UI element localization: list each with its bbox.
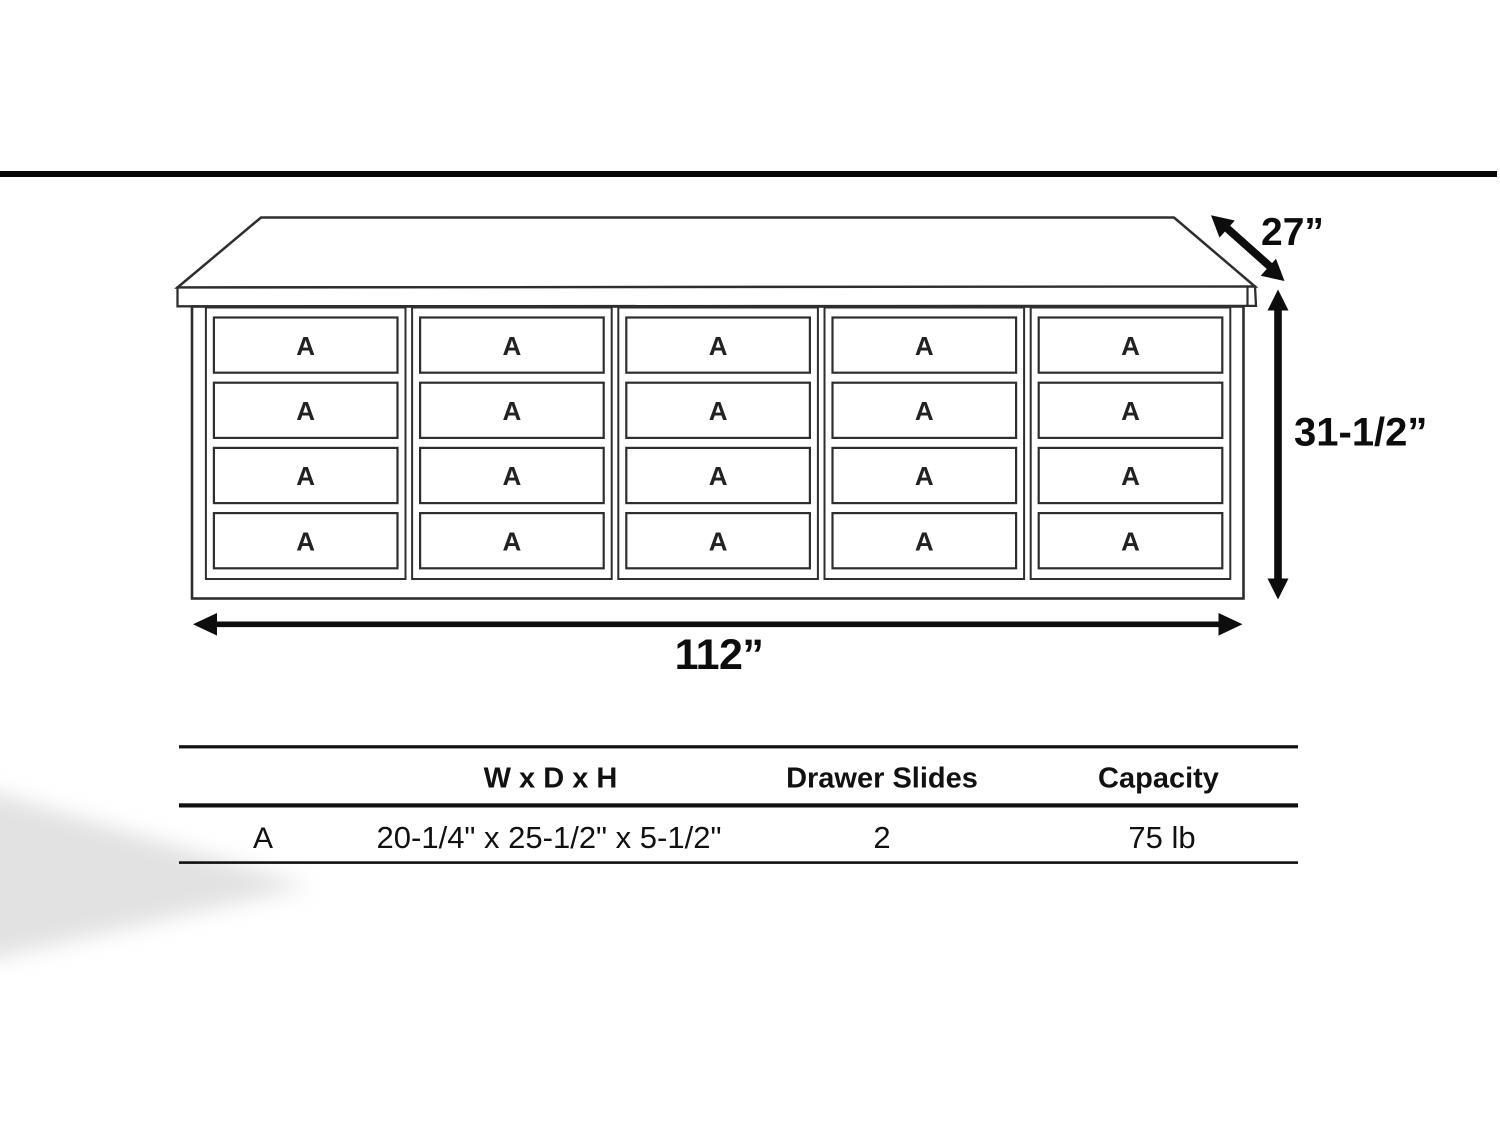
svg-text:A: A xyxy=(503,331,522,361)
svg-text:A: A xyxy=(1121,526,1140,556)
svg-text:27”: 27” xyxy=(1261,211,1324,254)
svg-text:A: A xyxy=(915,461,934,491)
svg-text:2: 2 xyxy=(873,820,890,855)
svg-text:A: A xyxy=(915,331,934,361)
svg-text:A: A xyxy=(503,396,522,426)
svg-text:20-1/4" x 25-1/2" x 5-1/2": 20-1/4" x 25-1/2" x 5-1/2" xyxy=(377,820,722,855)
svg-text:A: A xyxy=(503,526,522,556)
svg-text:A: A xyxy=(1121,331,1140,361)
svg-text:31-1/2”: 31-1/2” xyxy=(1294,410,1427,454)
svg-text:A: A xyxy=(709,331,728,361)
svg-text:W x D x H: W x D x H xyxy=(484,763,618,795)
svg-text:A: A xyxy=(709,396,728,426)
svg-text:Capacity: Capacity xyxy=(1098,763,1219,795)
svg-text:A: A xyxy=(915,396,934,426)
svg-text:Drawer Slides: Drawer Slides xyxy=(786,763,978,795)
svg-text:A: A xyxy=(709,461,728,491)
svg-text:A: A xyxy=(1121,396,1140,426)
svg-text:A: A xyxy=(253,822,273,855)
svg-text:A: A xyxy=(296,526,315,556)
svg-text:A: A xyxy=(296,331,315,361)
svg-text:112”: 112” xyxy=(675,631,764,679)
svg-text:A: A xyxy=(296,461,315,491)
svg-text:A: A xyxy=(709,526,728,556)
svg-text:A: A xyxy=(296,396,315,426)
svg-text:A: A xyxy=(915,526,934,556)
svg-text:A: A xyxy=(1121,461,1140,491)
svg-text:A: A xyxy=(503,461,522,491)
svg-text:75 lb: 75 lb xyxy=(1128,820,1195,855)
